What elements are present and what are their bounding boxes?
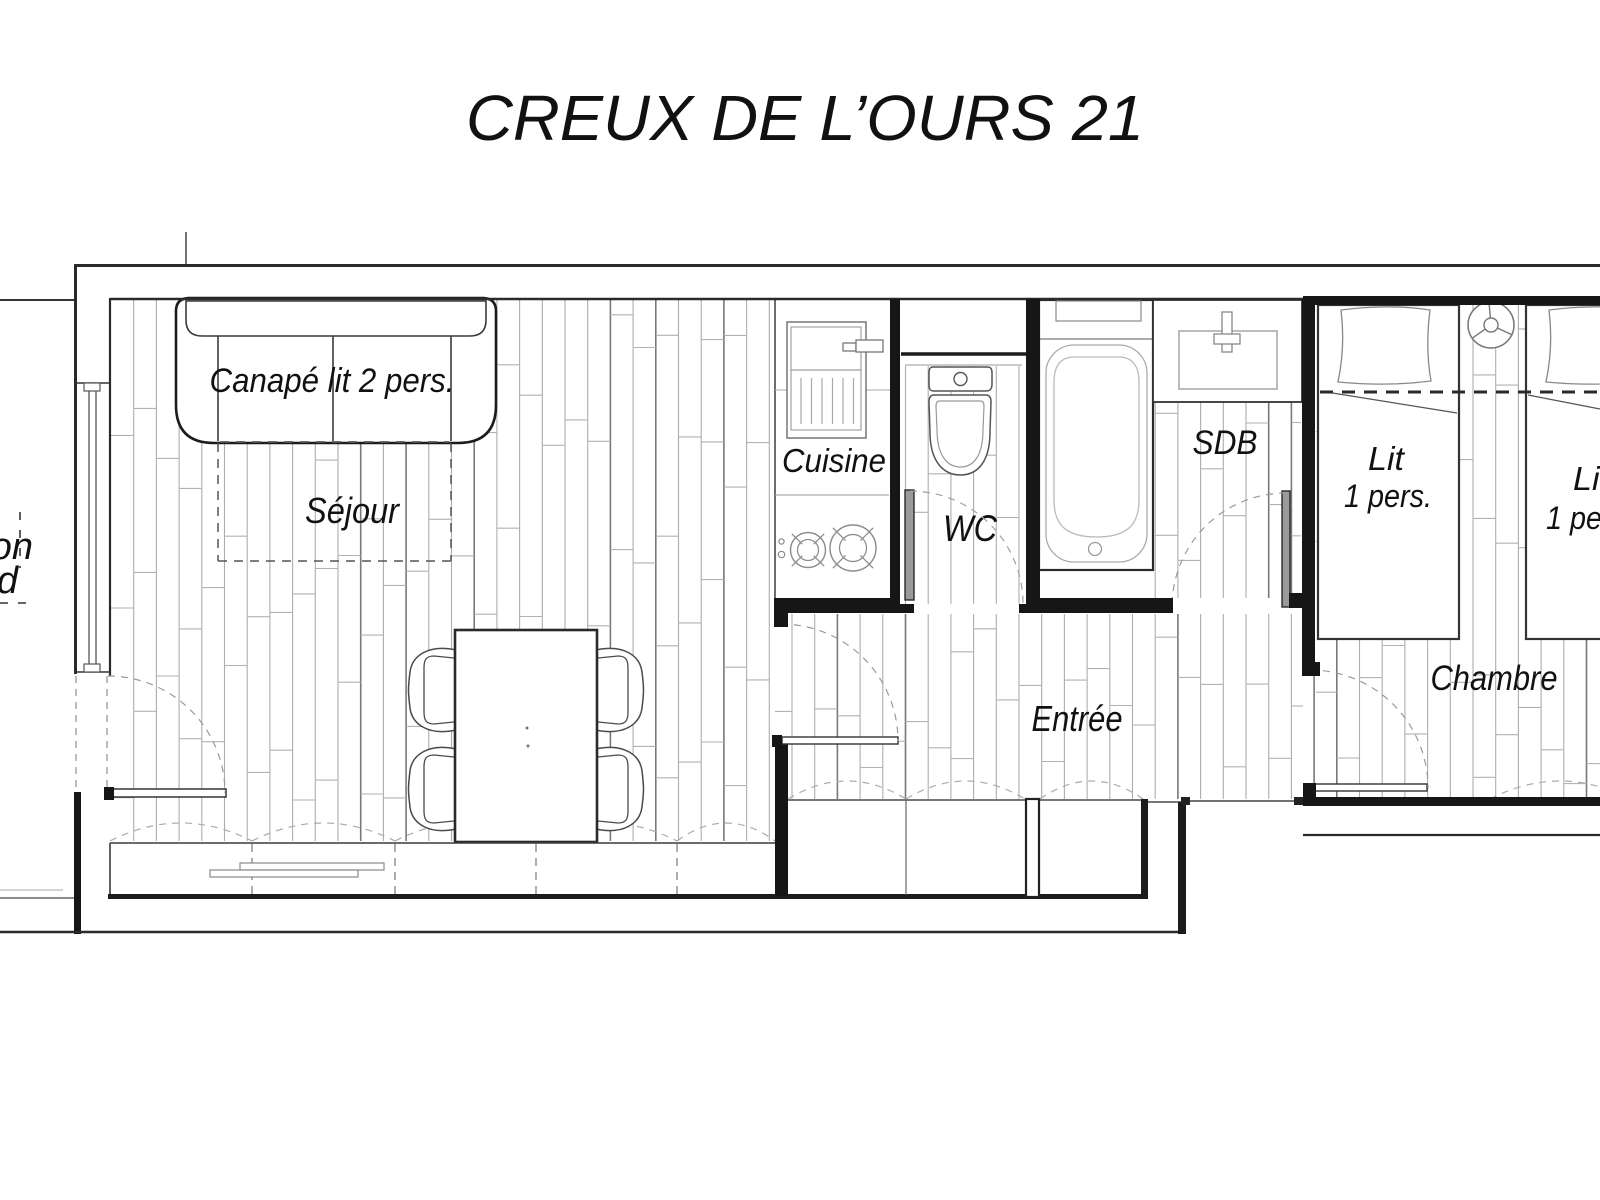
svg-text:WC: WC [943, 508, 997, 549]
svg-text:Cuisine: Cuisine [782, 442, 886, 479]
svg-text:Nord: Nord [0, 560, 20, 602]
svg-text:1 pers.: 1 pers. [1344, 478, 1432, 514]
svg-text:Entrée: Entrée [1032, 698, 1123, 739]
svg-text:Canapé lit 2 pers.: Canapé lit 2 pers. [210, 362, 455, 400]
svg-text:Lit: Lit [1368, 440, 1406, 477]
svg-text:CREUX DE L’OURS 21: CREUX DE L’OURS 21 [466, 82, 1144, 154]
svg-text:SDB: SDB [1193, 424, 1258, 462]
svg-text:Séjour: Séjour [305, 490, 401, 531]
svg-text:Lit: Lit [1573, 460, 1600, 497]
svg-text:1 pers.: 1 pers. [1546, 500, 1600, 536]
svg-text:Chambre: Chambre [1431, 659, 1558, 698]
